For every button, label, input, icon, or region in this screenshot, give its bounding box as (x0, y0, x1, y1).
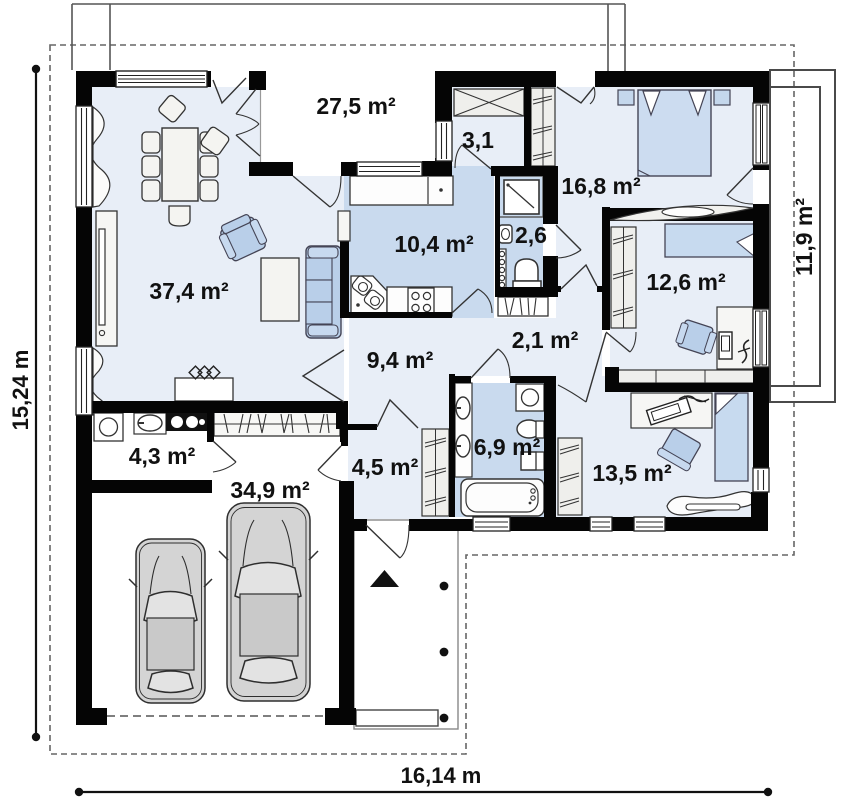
svg-text:12,6 m²: 12,6 m² (646, 269, 726, 295)
svg-text:3,1: 3,1 (462, 127, 494, 153)
svg-text:34,9 m²: 34,9 m² (230, 477, 310, 503)
svg-text:2,6: 2,6 (515, 222, 547, 248)
svg-text:11,9 m²: 11,9 m² (791, 198, 817, 276)
svg-text:15,24 m: 15,24 m (8, 350, 33, 431)
svg-text:10,4 m²: 10,4 m² (394, 231, 474, 257)
svg-text:16,8 m²: 16,8 m² (561, 173, 641, 199)
svg-text:16,14 m: 16,14 m (401, 763, 482, 788)
svg-text:9,4 m²: 9,4 m² (367, 347, 434, 373)
svg-text:13,5 m²: 13,5 m² (592, 460, 672, 486)
svg-text:37,4 m²: 37,4 m² (149, 278, 229, 304)
svg-text:6,9 m²: 6,9 m² (474, 434, 541, 460)
svg-text:4,3 m²: 4,3 m² (129, 443, 196, 469)
svg-text:27,5 m²: 27,5 m² (316, 93, 396, 119)
svg-text:4,5 m²: 4,5 m² (352, 454, 419, 480)
svg-text:2,1 m²: 2,1 m² (512, 327, 579, 353)
